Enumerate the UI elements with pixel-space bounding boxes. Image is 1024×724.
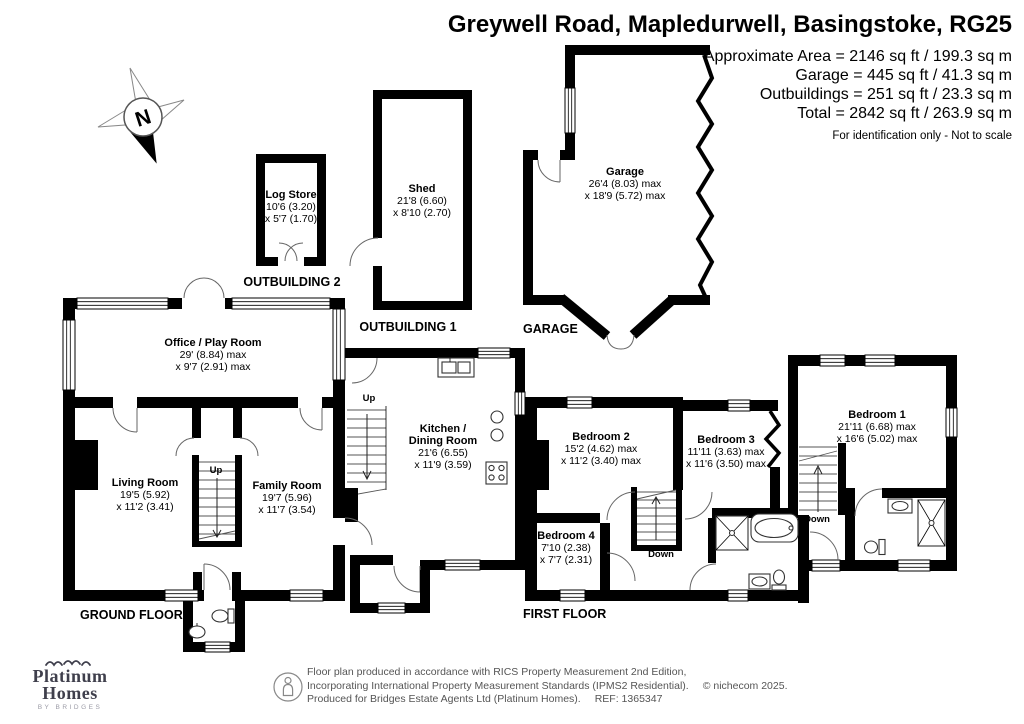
room-dim: 7'10 (2.38) bbox=[537, 542, 594, 554]
bathroom-toilet-fixture bbox=[772, 570, 786, 590]
room-dim: x 11'6 (3.50) max bbox=[686, 458, 766, 470]
room-name: Dining Room bbox=[409, 435, 477, 447]
label-first-floor: FIRST FLOOR bbox=[523, 607, 606, 621]
room-dim: 19'7 (5.96) bbox=[252, 492, 321, 504]
label-outbuilding-2: OUTBUILDING 2 bbox=[243, 275, 340, 289]
wc-toilet-fixture bbox=[212, 609, 234, 623]
footer-line2: Incorporating International Property Mea… bbox=[307, 680, 788, 694]
room-name: Kitchen / bbox=[409, 423, 477, 435]
platinum-homes-logo: Platinum Homes BY BRIDGES bbox=[20, 657, 120, 711]
footer-line2-text: Incorporating International Property Mea… bbox=[307, 680, 689, 692]
stair-label-up-main: Up bbox=[210, 465, 223, 476]
kitchen-wing-plan bbox=[345, 348, 525, 613]
ensuite-sink-fixture bbox=[888, 499, 912, 513]
area-line-total: Total = 2842 sq ft / 263.9 sq m bbox=[704, 104, 1012, 123]
room-label-bedroom-4: Bedroom 4 7'10 (2.38) x 7'7 (2.31) bbox=[537, 530, 594, 566]
stair-label-down-landing: Down bbox=[648, 549, 674, 560]
area-summary: Approximate Area = 2146 sq ft / 199.3 sq… bbox=[704, 47, 1012, 146]
ensuite-shower-fixture bbox=[918, 500, 945, 546]
compass-icon: N bbox=[98, 68, 184, 162]
room-label-log-store: Log Store 10'6 (3.20) x 5'7 (1.70) bbox=[265, 189, 317, 225]
area-line-garage: Garage = 445 sq ft / 41.3 sq m bbox=[704, 66, 1012, 85]
room-dim: 21'8 (6.60) bbox=[393, 195, 451, 207]
room-dim: x 8'10 (2.70) bbox=[393, 207, 451, 219]
bathroom-shower-fixture bbox=[716, 516, 748, 550]
stair-label-up-kitchen: Up bbox=[363, 393, 376, 404]
room-label-kitchen-dining: Kitchen / Dining Room 21'6 (6.55) x 11'9… bbox=[409, 423, 477, 471]
room-label-family-room: Family Room 19'7 (5.96) x 11'7 (3.54) bbox=[252, 480, 321, 516]
room-dim: x 16'6 (5.02) max bbox=[837, 433, 918, 445]
room-label-garage: Garage 26'4 (8.03) max x 18'9 (5.72) max bbox=[585, 166, 666, 202]
room-name: Bedroom 1 bbox=[837, 409, 918, 421]
kitchen-oven-fixture bbox=[491, 411, 503, 441]
room-dim: 15'2 (4.62) max bbox=[561, 443, 641, 455]
scale-disclaimer: For identification only - Not to scale bbox=[704, 127, 1012, 146]
room-dim: x 11'7 (3.54) bbox=[252, 504, 321, 516]
room-dim: 21'6 (6.55) bbox=[409, 447, 477, 459]
room-name: Office / Play Room bbox=[164, 337, 261, 349]
room-name: Bedroom 2 bbox=[561, 431, 641, 443]
logo-name-line2: Homes bbox=[20, 685, 120, 702]
room-dim: 29' (8.84) max bbox=[164, 349, 261, 361]
room-label-bedroom-3: Bedroom 3 11'11 (3.63) max x 11'6 (3.50)… bbox=[686, 434, 766, 470]
ensuite-toilet-fixture bbox=[865, 540, 886, 555]
area-line-outbuildings: Outbuildings = 251 sq ft / 23.3 sq m bbox=[704, 85, 1012, 104]
room-name: Log Store bbox=[265, 189, 317, 201]
room-name: Family Room bbox=[252, 480, 321, 492]
room-dim: 11'11 (3.63) max bbox=[686, 446, 766, 458]
room-dim: x 11'2 (3.41) bbox=[112, 501, 179, 513]
kitchen-sink-fixture bbox=[438, 358, 474, 377]
logo-tagline: BY BRIDGES bbox=[20, 704, 120, 711]
room-dim: x 11'2 (3.40) max bbox=[561, 455, 641, 467]
label-ground-floor: GROUND FLOOR bbox=[80, 608, 183, 622]
room-dim: x 11'9 (3.59) bbox=[409, 459, 477, 471]
bathroom-bath-fixture bbox=[751, 514, 798, 542]
room-name: Shed bbox=[393, 183, 451, 195]
room-label-office-play-room: Office / Play Room 29' (8.84) max x 9'7 … bbox=[164, 337, 261, 373]
room-name: Garage bbox=[585, 166, 666, 178]
room-dim: x 7'7 (2.31) bbox=[537, 554, 594, 566]
footer-copyright: © nichecom 2025. bbox=[703, 680, 788, 692]
footer-ref: REF: 1365347 bbox=[595, 693, 663, 705]
nichecom-person-icon bbox=[274, 673, 302, 701]
room-dim: x 18'9 (5.72) max bbox=[585, 190, 666, 202]
room-dim: x 5'7 (1.70) bbox=[265, 213, 317, 225]
property-title: Greywell Road, Mapledurwell, Basingstoke… bbox=[448, 11, 1012, 39]
room-dim: 10'6 (3.20) bbox=[265, 201, 317, 213]
label-outbuilding-1: OUTBUILDING 1 bbox=[359, 320, 456, 334]
footer-credits: Floor plan produced in accordance with R… bbox=[307, 666, 788, 707]
bathroom-sink-fixture bbox=[749, 574, 770, 589]
stair-label-down-bedroom1: Down bbox=[804, 514, 830, 525]
room-label-living-room: Living Room 19'5 (5.92) x 11'2 (3.41) bbox=[112, 477, 179, 513]
room-dim: 19'5 (5.92) bbox=[112, 489, 179, 501]
room-label-bedroom-1: Bedroom 1 21'11 (6.68) max x 16'6 (5.02)… bbox=[837, 409, 918, 445]
room-name: Bedroom 4 bbox=[537, 530, 594, 542]
footer-line3-text: Produced for Bridges Estate Agents Ltd (… bbox=[307, 693, 581, 705]
footer-line3: Produced for Bridges Estate Agents Ltd (… bbox=[307, 693, 788, 707]
room-name: Bedroom 3 bbox=[686, 434, 766, 446]
room-dim: 26'4 (8.03) max bbox=[585, 178, 666, 190]
kitchen-hob-fixture bbox=[486, 462, 507, 484]
footer-line1: Floor plan produced in accordance with R… bbox=[307, 666, 788, 680]
label-garage: GARAGE bbox=[523, 322, 578, 336]
area-line-approximate: Approximate Area = 2146 sq ft / 199.3 sq… bbox=[704, 47, 1012, 66]
room-dim: x 9'7 (2.91) max bbox=[164, 361, 261, 373]
ground-floor-plan bbox=[63, 278, 345, 652]
room-dim: 21'11 (6.68) max bbox=[837, 421, 918, 433]
room-name: Living Room bbox=[112, 477, 179, 489]
room-label-shed: Shed 21'8 (6.60) x 8'10 (2.70) bbox=[393, 183, 451, 219]
room-label-bedroom-2: Bedroom 2 15'2 (4.62) max x 11'2 (3.40) … bbox=[561, 431, 641, 467]
floorplan-page: N bbox=[0, 0, 1024, 724]
